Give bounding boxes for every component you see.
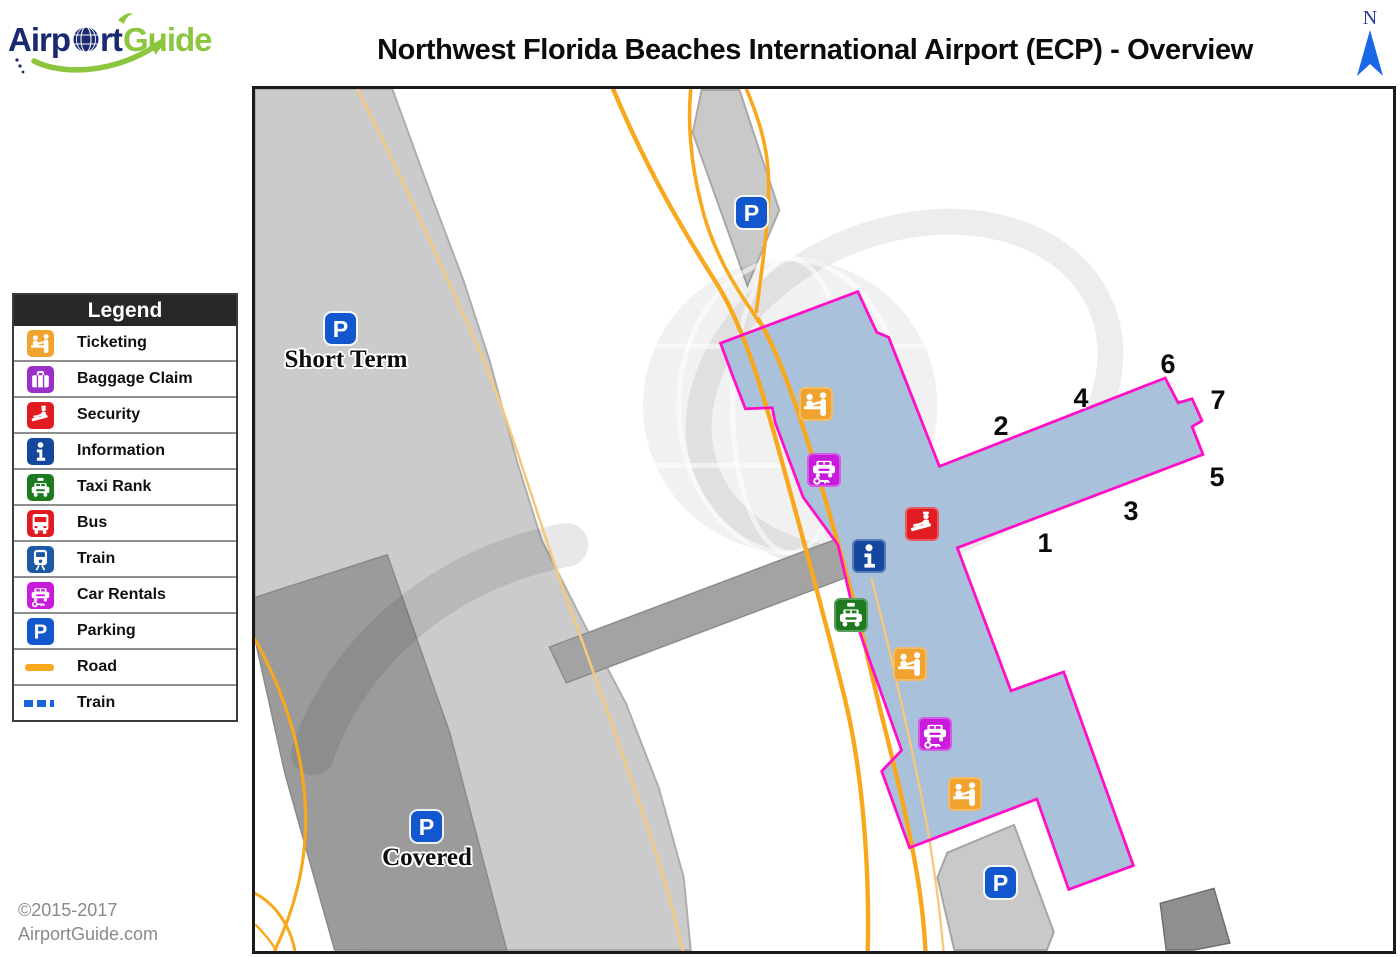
- logo-text-airport-2: rt: [100, 21, 123, 58]
- legend-row-baggage-claim: Baggage Claim: [14, 360, 236, 396]
- legend-row-taxi-rank: Taxi Rank: [14, 468, 236, 504]
- legend-row-train: Train: [14, 540, 236, 576]
- parking-icon-covered: [411, 811, 442, 842]
- logo-text-airport-1: Airp: [8, 21, 70, 58]
- logo-text-guide: Guide: [123, 21, 212, 58]
- parking-icon-bottom-lot: [985, 867, 1016, 898]
- information-icon-map: [852, 539, 886, 573]
- gate-5: 5: [1202, 462, 1232, 492]
- information-icon: [27, 438, 54, 465]
- car-rentals-icon-lower: [918, 717, 952, 751]
- legend-label: Taxi Rank: [77, 478, 151, 496]
- airport-map: Short Term Covered 1 2 3 4 5 6 7: [252, 86, 1396, 954]
- road-loop-corner-2: [256, 925, 276, 950]
- legend-row-information: Information: [14, 432, 236, 468]
- north-arrow-glyph: [1357, 30, 1383, 76]
- legend-row-car-rentals: Car Rentals: [14, 576, 236, 612]
- airport-guide-page: { "header": { "logo": { "full_name": "Ai…: [0, 0, 1400, 958]
- globe-icon: [74, 27, 99, 52]
- legend-row-ticketing: Ticketing: [14, 326, 236, 360]
- legend-label: Road: [77, 658, 117, 676]
- covered-label: Covered: [342, 844, 512, 872]
- parking-icon: [27, 618, 54, 645]
- legend-row-parking: Parking: [14, 612, 236, 648]
- legend-label: Bus: [77, 514, 107, 532]
- north-arrow: N: [1348, 6, 1392, 80]
- short-term-label: Short Term: [261, 346, 431, 374]
- gate-2: 2: [986, 411, 1016, 441]
- car-rentals-icon: [27, 582, 54, 609]
- gate-4: 4: [1066, 383, 1096, 413]
- legend-row-bus: Bus: [14, 504, 236, 540]
- ticketing-icon-lower: [948, 777, 982, 811]
- legend-title: Legend: [14, 295, 236, 326]
- page-title: Northwest Florida Beaches International …: [280, 34, 1350, 67]
- road-line-icon: [27, 654, 54, 681]
- legend-label: Parking: [77, 622, 136, 640]
- parking-icon-short-term: [325, 313, 356, 344]
- gate-3: 3: [1116, 496, 1146, 526]
- north-label: N: [1363, 7, 1377, 29]
- airportguide-logo[interactable]: Airp rt Guide: [6, 4, 221, 84]
- parking-island: [693, 90, 780, 286]
- road-loop-corner: [255, 893, 295, 950]
- small-building: [1160, 888, 1230, 950]
- legend-label: Train: [77, 694, 115, 712]
- legend-label: Baggage Claim: [77, 370, 193, 388]
- taxi-rank-icon-map: [834, 598, 868, 632]
- walkway: [549, 536, 861, 683]
- bus-icon: [27, 510, 54, 537]
- gate-1: 1: [1030, 528, 1060, 558]
- ticketing-icon-upper: [799, 387, 833, 421]
- legend-label: Car Rentals: [77, 586, 166, 604]
- copyright: ©2015-2017 AirportGuide.com: [18, 898, 158, 947]
- legend-label: Train: [77, 550, 115, 568]
- legend-label: Security: [77, 406, 140, 424]
- ticketing-icon: [27, 330, 54, 357]
- security-icon: [27, 402, 54, 429]
- train-icon: [27, 546, 54, 573]
- train-line-icon: [27, 690, 54, 717]
- car-rentals-icon-upper: [807, 453, 841, 487]
- parking-icon-island: [736, 197, 767, 228]
- taxi-rank-icon: [27, 474, 54, 501]
- baggage-claim-icon: [27, 366, 54, 393]
- security-icon-map: [905, 507, 939, 541]
- legend-row-road: Road: [14, 648, 236, 684]
- gate-6: 6: [1153, 349, 1183, 379]
- legend-label: Information: [77, 442, 165, 460]
- gate-7: 7: [1203, 385, 1233, 415]
- legend-label: Ticketing: [77, 334, 147, 352]
- legend-panel: Legend Ticketing Baggage Claim Security …: [12, 293, 238, 722]
- ticketing-icon-middle: [893, 647, 927, 681]
- legend-row-security: Security: [14, 396, 236, 432]
- legend-row-train-line: Train: [14, 684, 236, 720]
